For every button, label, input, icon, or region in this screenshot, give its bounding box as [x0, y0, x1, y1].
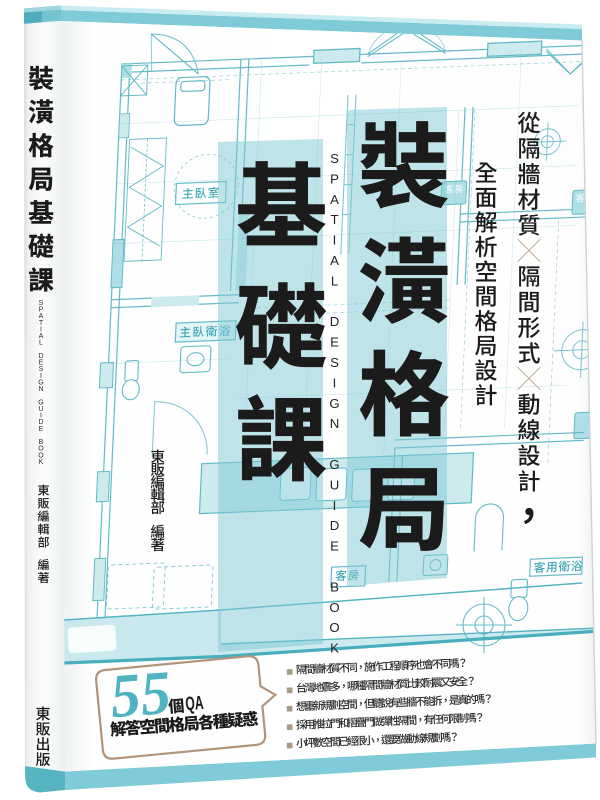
svg-text:D: D [330, 314, 340, 329]
svg-text:E: E [330, 335, 339, 350]
svg-text:L: L [39, 340, 43, 347]
svg-text:K: K [330, 641, 339, 656]
svg-text:O: O [329, 620, 339, 635]
svg-text:A: A [330, 192, 339, 207]
svg-text:D: D [330, 518, 340, 533]
svg-text:S: S [330, 151, 339, 166]
svg-text:A: A [330, 253, 339, 268]
svg-text:K: K [39, 459, 44, 466]
svg-text:G: G [329, 457, 339, 472]
svg-text:I: I [333, 375, 337, 390]
svg-text:U: U [330, 477, 340, 492]
svg-text:I: I [333, 498, 337, 513]
svg-text:I: I [333, 233, 337, 248]
svg-text:O: O [329, 600, 339, 615]
svg-text:E: E [330, 539, 339, 554]
svg-text:S: S [330, 355, 339, 370]
svg-text:G: G [329, 396, 339, 411]
svg-text:B: B [330, 579, 339, 594]
svg-text:T: T [330, 212, 338, 227]
svg-text:E: E [39, 426, 44, 433]
svg-text:QA: QA [185, 692, 205, 715]
svg-text:L: L [331, 273, 338, 288]
svg-text:P: P [330, 171, 339, 186]
svg-text:N: N [38, 386, 43, 393]
svg-text:N: N [330, 416, 340, 431]
